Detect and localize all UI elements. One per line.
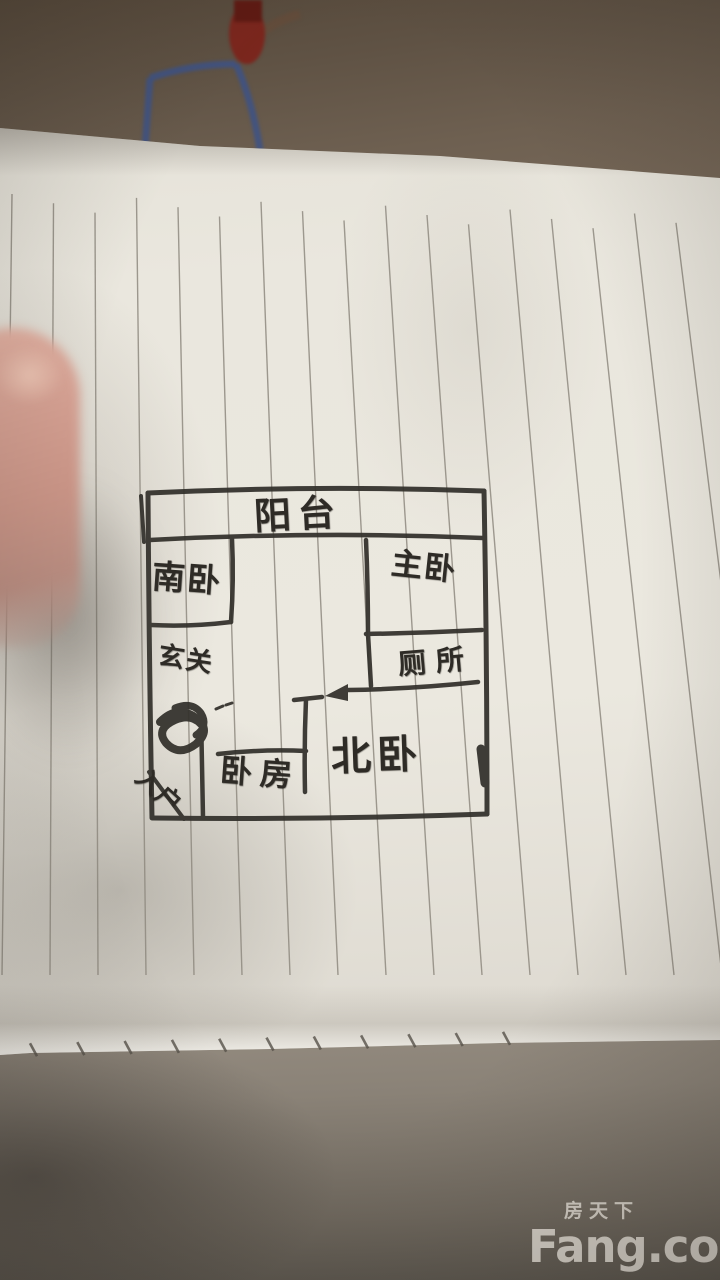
photo-scene: 阳台 南卧 主卧 厕所 玄关 卧房 北卧 入户 房天下 Fang.com [0, 0, 720, 1280]
watermark-chinese: 房天下 [564, 1196, 720, 1223]
perforation-tick [361, 1035, 368, 1048]
perforation-tick [77, 1042, 84, 1055]
watermark-logo: Fang.com [528, 1220, 720, 1273]
perforation-tick [408, 1034, 415, 1047]
perforation-tick [314, 1036, 321, 1049]
watermark: 房天下 Fang.com [528, 1196, 720, 1273]
perforation-tick [267, 1038, 274, 1051]
perforation-tick [219, 1039, 226, 1052]
perforation-tick [503, 1032, 510, 1045]
perforation-tick [125, 1041, 132, 1054]
perforation-tick [172, 1040, 179, 1053]
perforation-tick [456, 1033, 463, 1046]
perforation-tick [30, 1043, 37, 1056]
